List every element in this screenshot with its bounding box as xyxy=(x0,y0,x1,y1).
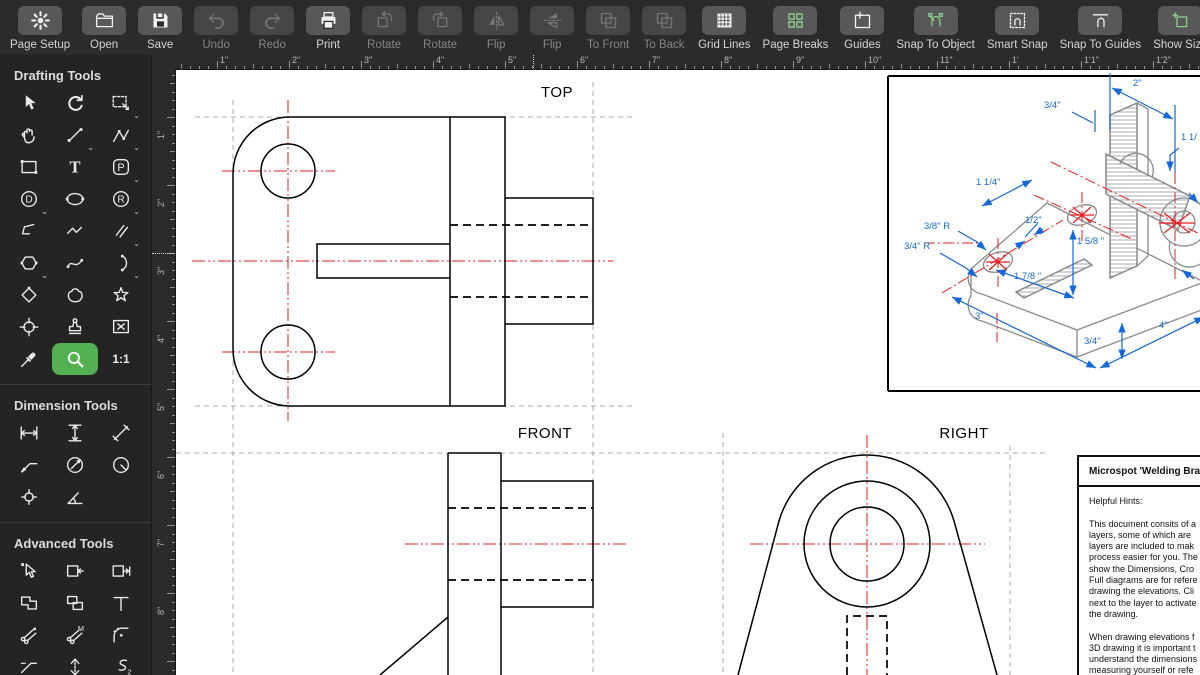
resize-right-tool[interactable] xyxy=(98,555,144,587)
panel-text-line: Full diagrams are for refere xyxy=(1089,575,1200,586)
rectangle-tool[interactable] xyxy=(6,151,52,183)
panel-text-line xyxy=(1089,507,1200,518)
ruler-tick xyxy=(172,338,176,339)
chamfer-icon xyxy=(18,656,40,675)
ruler-tick xyxy=(172,347,176,348)
ruler-guide-marker xyxy=(533,55,534,70)
ruler-label: 8" xyxy=(156,601,166,615)
ruler-tick xyxy=(170,423,176,424)
ruler-tick xyxy=(1099,66,1100,70)
ruler-tick xyxy=(172,474,176,475)
dimension-label: 4" xyxy=(1159,320,1168,331)
ruler-tick xyxy=(1036,66,1037,70)
trim-icon xyxy=(110,592,132,614)
ruler-label: 1'2" xyxy=(1156,55,1171,65)
ruler-tick xyxy=(514,66,515,70)
ruler-tick xyxy=(172,100,176,101)
ruler-tick xyxy=(1126,66,1127,70)
ruler-tick xyxy=(838,66,839,70)
ruler-tick xyxy=(172,542,176,543)
rotated-rectangle-tool[interactable] xyxy=(6,279,52,311)
redo-arrow-icon xyxy=(262,10,283,31)
distribute-tool[interactable] xyxy=(52,651,98,675)
toolbar-button-flip[interactable]: Flip xyxy=(474,6,518,55)
paragraph-text-icon: P xyxy=(110,156,132,178)
ruler-tick xyxy=(172,483,176,484)
toolbar-label: Guides xyxy=(844,39,880,51)
ruler-tick xyxy=(811,66,812,70)
ruler-tick xyxy=(172,500,176,501)
panel-text-line: 3D drawing it is important t xyxy=(1089,643,1200,654)
stamp-tool[interactable] xyxy=(52,311,98,343)
iso-object xyxy=(968,103,1200,357)
horizontal-ruler[interactable]: 1"2"3"4"5"6"7"8"9"10"11"1'1'1"1'2" xyxy=(152,55,1200,70)
ruler-tick xyxy=(496,66,497,70)
fillet-icon xyxy=(110,624,132,646)
panel-text-line: next to the layer to activate xyxy=(1089,598,1200,609)
ruler-tick xyxy=(307,66,308,70)
rotate-tool[interactable] xyxy=(52,87,98,119)
ruler-label: 1'1" xyxy=(1084,55,1099,65)
curve-icon xyxy=(64,252,86,274)
ruler-tick xyxy=(226,66,227,70)
ruler-tick xyxy=(170,219,176,220)
panel-text-line: This document consits of a xyxy=(1089,519,1200,530)
panel-text-line: the drawing. xyxy=(1089,609,1200,620)
ruler-tick xyxy=(172,177,176,178)
ruler-tick xyxy=(883,66,884,70)
ruler-label: 2" xyxy=(292,55,300,65)
ruler-tick xyxy=(793,61,794,69)
ruler-tick xyxy=(172,296,176,297)
ruler-tick xyxy=(1108,66,1109,70)
freeform-tool[interactable] xyxy=(52,279,98,311)
ruler-tick xyxy=(170,83,176,84)
ruler-tick xyxy=(199,66,200,70)
ruler-tick xyxy=(1180,66,1181,70)
right-view-label[interactable]: RIGHT xyxy=(919,425,1009,442)
ruler-tick xyxy=(748,66,749,70)
ruler-tick xyxy=(541,64,542,70)
drawing-area[interactable]: TOP FRONT RIGHT 2"3/4"1 1/1 1/4"1/2"3/8"… xyxy=(176,70,1200,675)
ruler-tick xyxy=(694,66,695,70)
tool-sidebar: Drafting Tools⌄⌄⌄TP⌄D⌄R⌄⌄⌄⌄1:1Dimension … xyxy=(0,55,152,675)
svg-text:R: R xyxy=(117,195,124,206)
edit-selection-icon xyxy=(18,560,40,582)
toolbar-button-open[interactable]: Open xyxy=(82,6,126,55)
front-view-label[interactable]: FRONT xyxy=(500,425,590,442)
zigzag-line-tool[interactable] xyxy=(52,215,98,247)
ruler-tick xyxy=(167,117,175,118)
dimension-label: 1 7/8 " xyxy=(1014,271,1041,282)
ruler-tick xyxy=(1054,66,1055,70)
dim-horizontal-icon xyxy=(18,422,40,444)
selection-tool[interactable] xyxy=(6,87,52,119)
dim-horizontal-tool[interactable] xyxy=(6,417,52,449)
ruler-tick xyxy=(172,508,176,509)
toolbar-label: Open xyxy=(90,39,118,51)
subtract-tool[interactable] xyxy=(52,587,98,619)
pan-tool[interactable] xyxy=(6,119,52,151)
diameter-circle-icon: D xyxy=(18,188,40,210)
dimension-label: 3/8" R xyxy=(924,221,950,232)
section-title-dimension-tools: Dimension Tools xyxy=(0,385,151,417)
rotated-rectangle-icon xyxy=(18,284,40,306)
ruler-tick xyxy=(1117,64,1118,70)
curve-tool[interactable] xyxy=(52,247,98,279)
ruler-label: 3" xyxy=(156,261,166,275)
ruler-tick xyxy=(487,66,488,70)
ruler-tick xyxy=(1198,66,1199,70)
toolbar-label: Redo xyxy=(258,39,286,51)
dim-center-mark-icon xyxy=(18,486,40,508)
dimension-label: 3/4" R xyxy=(904,241,930,252)
combine-tool[interactable] xyxy=(6,587,52,619)
toolbar-button-page-setup[interactable]: Page Setup xyxy=(10,6,70,55)
eyedropper-tool[interactable] xyxy=(6,343,52,375)
multi-cut-tool[interactable]: M xyxy=(52,619,98,651)
polyline-tool[interactable]: ⌄ xyxy=(98,119,144,151)
svg-text:D: D xyxy=(25,195,32,206)
toolbar-label: Page Breaks xyxy=(763,39,829,51)
toolbar-button-guides[interactable]: Guides xyxy=(840,6,884,55)
ruler-tick xyxy=(469,64,470,70)
ruler-tick xyxy=(244,66,245,70)
panel-text-line: layers are included to mak xyxy=(1089,541,1200,552)
toolbar-label: Snap To Guides xyxy=(1060,39,1142,51)
dim-leader-icon xyxy=(18,454,40,476)
ruler-tick xyxy=(622,66,623,70)
panel-text-line: layers, some of which are xyxy=(1089,530,1200,541)
ruler-tick xyxy=(172,610,176,611)
arc-tool[interactable]: ⌄ xyxy=(98,247,144,279)
ruler-tick xyxy=(523,66,524,70)
gear-icon xyxy=(30,10,51,31)
toolbar-label: Snap To Object xyxy=(896,39,974,51)
ruler-tick xyxy=(172,245,176,246)
ruler-tick xyxy=(802,66,803,70)
ruler-tick xyxy=(1018,66,1019,70)
ruler-tick xyxy=(973,64,974,70)
ruler-tick xyxy=(1045,64,1046,70)
ruler-tick xyxy=(433,61,434,69)
toolbar-button-save[interactable]: Save xyxy=(138,6,182,55)
printer-icon xyxy=(318,10,339,31)
svg-text:M: M xyxy=(78,624,84,633)
paragraph-text-tool[interactable]: P⌄ xyxy=(98,151,144,183)
ruler-label: 4" xyxy=(436,55,444,65)
rotate-left-icon xyxy=(374,10,395,31)
ruler-tick xyxy=(892,66,893,70)
ruler-tick xyxy=(167,593,175,594)
tool-grid-drafting-tools: ⌄⌄⌄TP⌄D⌄R⌄⌄⌄⌄1:1 xyxy=(0,87,151,375)
ruler-tick xyxy=(991,66,992,70)
ruler-tick xyxy=(190,66,191,70)
toolbar-button-snap-to-guides[interactable]: Snap To Guides xyxy=(1060,6,1142,55)
top-view xyxy=(192,100,613,421)
ruler-tick xyxy=(167,321,175,322)
folder-icon xyxy=(94,10,115,31)
ruler-tick xyxy=(856,66,857,70)
center-mark-icon xyxy=(18,316,40,338)
toolbar-button-rotate[interactable]: Rotate xyxy=(362,6,406,55)
toolbar-label: Print xyxy=(316,39,340,51)
toolbar-button-flip[interactable]: Flip xyxy=(530,6,574,55)
ruler-label: 4" xyxy=(156,329,166,343)
dim-diagonal-icon xyxy=(110,422,132,444)
ruler-tick xyxy=(170,355,176,356)
toolbar-label: Show Size xyxy=(1153,39,1200,51)
ruler-tick xyxy=(1090,66,1091,70)
ruler-tick xyxy=(379,66,380,70)
toolbar-button-show-size[interactable]: Show Size xyxy=(1153,6,1200,55)
ellipse-icon xyxy=(64,188,86,210)
toolbar-button-undo[interactable]: Undo xyxy=(194,6,238,55)
ruler-tick xyxy=(955,66,956,70)
ruler-tick xyxy=(406,66,407,70)
ruler-tick xyxy=(172,551,176,552)
panel-text-line: process easier for you. The xyxy=(1089,552,1200,563)
flip-horizontal-icon xyxy=(486,10,507,31)
vertical-ruler[interactable]: 1"2"3"4"5"6"7"8"9" xyxy=(152,70,176,675)
ruler-tick xyxy=(289,61,290,69)
ruler-tick xyxy=(172,304,176,305)
iso-frame xyxy=(888,76,1200,391)
actual-size-icon: 1:1 xyxy=(110,348,132,370)
dimension-label: 3/4" xyxy=(1044,100,1061,111)
panel-text-line: drawing the elevations. Cli xyxy=(1089,586,1200,597)
ruler-tick xyxy=(424,66,425,70)
toolbar-label: Rotate xyxy=(367,39,401,51)
toolbar-button-redo[interactable]: Redo xyxy=(250,6,294,55)
dim-vertical-icon xyxy=(64,422,86,444)
symbol-tool[interactable] xyxy=(98,311,144,343)
ruler-tick xyxy=(712,66,713,70)
ruler-tick xyxy=(1162,66,1163,70)
svg-text:1:1: 1:1 xyxy=(112,352,130,366)
ruler-tick xyxy=(172,440,176,441)
hexagon-icon xyxy=(18,252,40,274)
ruler-tick xyxy=(172,194,176,195)
ruler-tick xyxy=(280,66,281,70)
dim-radius-tool[interactable] xyxy=(98,449,144,481)
ruler-tick xyxy=(172,432,176,433)
dim-radius-icon xyxy=(110,454,132,476)
hexagon-tool[interactable]: ⌄ xyxy=(6,247,52,279)
fillet-tool[interactable] xyxy=(98,619,144,651)
distribute-icon xyxy=(64,656,86,675)
ruler-tick xyxy=(172,585,176,586)
ruler-tick xyxy=(370,66,371,70)
ruler-tick xyxy=(946,66,947,70)
ruler-tick xyxy=(167,457,175,458)
ruler-tick xyxy=(757,64,758,70)
resize-right-icon xyxy=(110,560,132,582)
toolbar-button-to-back[interactable]: To Back xyxy=(642,6,686,55)
ruler-tick xyxy=(172,211,176,212)
ruler-guide-marker xyxy=(152,253,176,254)
center-mark-tool[interactable] xyxy=(6,311,52,343)
ruler-tick xyxy=(550,66,551,70)
dimension-label: 3" xyxy=(975,311,984,322)
ruler-tick xyxy=(170,151,176,152)
ruler-tick xyxy=(172,670,176,671)
section-title-advanced-tools: Advanced Tools xyxy=(0,523,151,555)
ruler-tick xyxy=(172,602,176,603)
dim-center-mark-tool[interactable] xyxy=(6,481,52,513)
ruler-tick xyxy=(928,66,929,70)
svg-text:2: 2 xyxy=(127,667,131,675)
ruler-label: 5" xyxy=(508,55,516,65)
panel-text-line: understand the dimensions xyxy=(1089,654,1200,665)
line-tool[interactable]: ⌄ xyxy=(52,119,98,151)
dimension-label: 1 5/8 " xyxy=(1077,236,1104,247)
ruler-tick xyxy=(505,61,506,69)
polygon-tool[interactable] xyxy=(6,215,52,247)
guides-icon xyxy=(852,10,873,31)
ruler-tick xyxy=(262,66,263,70)
ruler-tick xyxy=(874,66,875,70)
dimension-label: 1 1/ xyxy=(1181,132,1197,143)
dim-angle-tool[interactable] xyxy=(52,481,98,513)
ruler-tick xyxy=(937,61,938,69)
ruler-tick xyxy=(172,517,176,518)
panel-text-line: Helpful Hints: xyxy=(1089,496,1200,507)
ruler-tick xyxy=(172,75,176,76)
ruler-tick xyxy=(1081,61,1082,69)
ruler-tick xyxy=(1189,64,1190,70)
tool-grid-advanced-tools: M2 xyxy=(0,555,151,675)
toolbar-button-snap-to-object[interactable]: Snap To Object xyxy=(896,6,974,55)
ruler-tick xyxy=(172,653,176,654)
toolbar-button-print[interactable]: Print xyxy=(306,6,350,55)
polygon-icon xyxy=(18,220,40,242)
ruler-tick xyxy=(172,466,176,467)
star-tool[interactable] xyxy=(98,279,144,311)
ruler-tick xyxy=(172,279,176,280)
convert-tool[interactable]: 2 xyxy=(98,651,144,675)
trim-tool[interactable] xyxy=(98,587,144,619)
ruler-label: 1" xyxy=(156,125,166,139)
ruler-label: 6" xyxy=(580,55,588,65)
dim-diameter-tool[interactable] xyxy=(52,449,98,481)
ruler-tick xyxy=(172,109,176,110)
ruler-tick xyxy=(1144,66,1145,70)
ruler-label: 7" xyxy=(156,533,166,547)
snap-to-guides-icon xyxy=(1090,10,1111,31)
floppy-icon xyxy=(150,10,171,31)
toolbar-label: Smart Snap xyxy=(987,39,1048,51)
ruler-tick xyxy=(1063,66,1064,70)
ruler-tick xyxy=(172,364,176,365)
ruler-tick xyxy=(172,168,176,169)
parallel-line-tool[interactable]: ⌄ xyxy=(98,215,144,247)
rectangle-icon xyxy=(18,156,40,178)
ruler-tick xyxy=(167,389,175,390)
zoom-tool[interactable] xyxy=(52,343,98,375)
ruler-label: 9" xyxy=(156,669,166,675)
toolbar-button-page-breaks[interactable]: Page Breaks xyxy=(763,6,829,55)
snap-to-object-icon xyxy=(925,10,946,31)
ruler-tick xyxy=(658,66,659,70)
toolbar-button-rotate[interactable]: Rotate xyxy=(418,6,462,55)
edit-selection-tool[interactable] xyxy=(6,555,52,587)
ruler-tick xyxy=(982,66,983,70)
resize-left-tool[interactable] xyxy=(52,555,98,587)
rotate-right-icon xyxy=(430,10,451,31)
cut-tool[interactable] xyxy=(6,619,52,651)
toolbar-button-grid-lines[interactable]: Grid Lines xyxy=(698,6,750,55)
ruler-tick xyxy=(910,66,911,70)
ruler-tick xyxy=(172,381,176,382)
dimension-label: 1 1/4" xyxy=(976,177,1001,188)
ruler-tick xyxy=(172,372,176,373)
ruler-tick xyxy=(820,66,821,70)
toolbar-button-to-front[interactable]: To Front xyxy=(586,6,630,55)
ruler-label: 6" xyxy=(156,465,166,479)
main-toolbar: Page SetupOpenSaveUndoRedoPrintRotateRot… xyxy=(0,0,1200,55)
ruler-tick xyxy=(316,66,317,70)
text-tool[interactable]: T xyxy=(52,151,98,183)
ruler-tick xyxy=(451,66,452,70)
ruler-tick xyxy=(1072,66,1073,70)
panel-body: Helpful Hints:This document consits of a… xyxy=(1079,487,1200,675)
technical-drawing xyxy=(176,70,1200,675)
svg-text:T: T xyxy=(69,158,80,177)
ruler-tick xyxy=(721,61,722,69)
helpful-hints-panel[interactable]: Microspot 'Welding Brac Helpful Hints:Th… xyxy=(1077,455,1200,675)
diameter-circle-tool[interactable]: D⌄ xyxy=(6,183,52,215)
convert-icon: 2 xyxy=(110,656,132,675)
ruler-tick xyxy=(352,66,353,70)
ellipse-tool[interactable] xyxy=(52,183,98,215)
ruler-tick xyxy=(415,66,416,70)
ruler-tick xyxy=(343,66,344,70)
ruler-tick xyxy=(217,61,218,69)
ruler-tick xyxy=(172,330,176,331)
ruler-tick xyxy=(649,61,650,69)
page-breaks-icon xyxy=(785,10,806,31)
tool-grid-dimension-tools xyxy=(0,417,151,513)
ruler-tick xyxy=(1153,61,1154,69)
ruler-tick xyxy=(1000,66,1001,70)
ruler-tick xyxy=(172,160,176,161)
actual-size-tool[interactable]: 1:1 xyxy=(98,343,144,375)
ruler-tick xyxy=(685,64,686,70)
toolbar-label: Save xyxy=(147,39,173,51)
dimension-label: 2" xyxy=(1133,78,1142,89)
top-view-label[interactable]: TOP xyxy=(512,84,602,101)
ruler-tick xyxy=(613,64,614,70)
toolbar-button-smart-snap[interactable]: Smart Snap xyxy=(987,6,1048,55)
zoom-icon xyxy=(64,348,86,370)
chamfer-tool[interactable] xyxy=(6,651,52,675)
radius-circle-icon: R xyxy=(110,188,132,210)
ruler-tick xyxy=(172,415,176,416)
dim-vertical-tool[interactable] xyxy=(52,417,98,449)
ruler-tick xyxy=(784,66,785,70)
dim-diameter-icon xyxy=(64,454,86,476)
ruler-tick xyxy=(208,66,209,70)
eyedropper-icon xyxy=(18,348,40,370)
radius-circle-tool[interactable]: R⌄ xyxy=(98,183,144,215)
marquee-tool[interactable]: ⌄ xyxy=(98,87,144,119)
dim-diagonal-tool[interactable] xyxy=(98,417,144,449)
ruler-tick xyxy=(170,559,176,560)
ruler-tick xyxy=(172,270,176,271)
dim-leader-tool[interactable] xyxy=(6,449,52,481)
ruler-label: 5" xyxy=(156,397,166,411)
